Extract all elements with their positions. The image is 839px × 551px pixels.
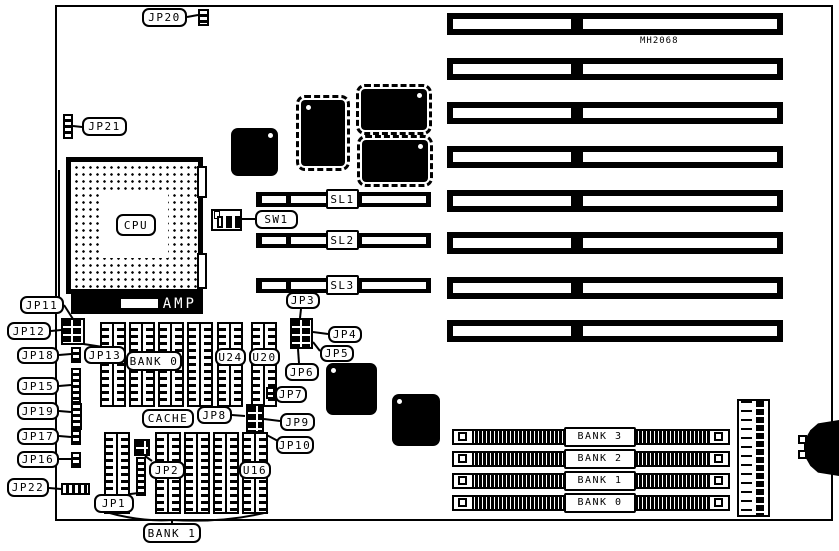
simm-latch xyxy=(714,432,723,441)
jp20-callout: JP20 xyxy=(142,8,187,27)
sl3-label: SL3 xyxy=(326,275,359,295)
isa-slot-4 xyxy=(447,146,783,168)
slot-opening xyxy=(453,19,571,29)
jp1-jumper xyxy=(136,457,146,496)
slot-opening xyxy=(583,283,777,293)
slot-opening xyxy=(453,64,571,74)
jp3-callout: JP3 xyxy=(286,292,320,309)
switch-1 xyxy=(217,216,223,228)
jp13-callout: JP13 xyxy=(84,346,126,364)
u24-label: U24 xyxy=(215,348,246,366)
simm-latch xyxy=(458,498,467,507)
slot-opening xyxy=(291,237,327,244)
chip-qfp-wide-2 xyxy=(362,140,428,182)
socket-tab xyxy=(197,166,207,198)
simm-latch xyxy=(458,476,467,485)
simm-end xyxy=(454,475,472,487)
simm-end xyxy=(454,453,472,465)
isa-slot-6 xyxy=(447,232,783,254)
slot-opening xyxy=(453,108,571,118)
bank0-dip-callout: BANK 0 xyxy=(126,351,182,371)
zif-lever xyxy=(58,170,60,308)
simm-latch xyxy=(458,454,467,463)
dip-socket xyxy=(187,322,213,407)
simm-bank3-label: BANK 3 xyxy=(564,427,636,447)
part-number: MH2068 xyxy=(640,36,679,46)
jp1-callout: JP1 xyxy=(94,494,134,513)
jp22-callout: JP22 xyxy=(7,478,49,497)
slot-opening xyxy=(583,152,777,162)
jp15-callout: JP15 xyxy=(17,377,59,395)
jp17-callout: JP17 xyxy=(17,428,59,445)
din-pin xyxy=(798,450,807,459)
jp8-callout: JP8 xyxy=(197,406,232,424)
jp7-callout: JP7 xyxy=(275,386,307,403)
switch-3 xyxy=(235,216,241,228)
power-connector xyxy=(737,399,770,517)
jp10-callout: JP10 xyxy=(276,436,314,454)
chip-square-3 xyxy=(392,394,440,446)
jp2-callout: JP2 xyxy=(149,461,185,479)
simm-end xyxy=(710,497,728,509)
chip-qfp-tall xyxy=(301,100,345,166)
dip-switch-sw1 xyxy=(211,209,242,231)
simm-end xyxy=(710,475,728,487)
switch-2 xyxy=(226,216,232,228)
jp3-jp4-jp5-jp6-jumper-block xyxy=(290,318,313,349)
simm-socket-bank3: BANK 3 xyxy=(452,429,730,445)
pin1-dot xyxy=(417,93,422,98)
jp8-jp9-jp10-jumper-block xyxy=(246,404,264,433)
slot-opening xyxy=(291,196,327,203)
pin1-dot xyxy=(268,133,273,138)
dip-socket xyxy=(100,322,126,407)
jp15-jumper xyxy=(71,368,81,403)
slot-opening xyxy=(583,19,777,29)
bank1-dip-callout: BANK 1 xyxy=(143,523,201,543)
jp11-callout: JP11 xyxy=(20,296,64,314)
jp2-jumper-block xyxy=(134,439,150,456)
chip-square-2 xyxy=(326,363,377,415)
isa-slot-8 xyxy=(447,320,783,342)
sl2-label: SL2 xyxy=(326,230,359,250)
simm-latch xyxy=(714,498,723,507)
simm-end xyxy=(454,497,472,509)
u20-label: U20 xyxy=(249,348,280,366)
socket-tab xyxy=(197,253,207,289)
jp19-callout: JP19 xyxy=(17,402,59,420)
jp12-callout: JP12 xyxy=(7,322,51,340)
amp-brand-label: AMP xyxy=(163,296,197,312)
slot-opening xyxy=(453,238,571,248)
slot-opening xyxy=(583,196,777,206)
pin1-dot xyxy=(331,368,336,373)
slot-opening xyxy=(362,196,426,203)
jp19-jumper xyxy=(71,403,82,430)
isa-slot-5 xyxy=(447,190,783,212)
dip-socket xyxy=(184,432,210,514)
jp22-jumper xyxy=(61,483,90,495)
jp17-jumper xyxy=(71,430,81,445)
jp5-callout: JP5 xyxy=(320,345,354,362)
slot-opening xyxy=(453,196,571,206)
slot-opening xyxy=(583,108,777,118)
slot-opening xyxy=(262,237,286,244)
slot-opening xyxy=(362,282,426,289)
simm-latch xyxy=(714,476,723,485)
simm-latch xyxy=(714,454,723,463)
simm-socket-bank1: BANK 1 xyxy=(452,473,730,489)
simm-bank0-label: BANK 0 xyxy=(564,493,636,513)
jp7-jumper xyxy=(266,387,275,399)
pin1-dot xyxy=(397,399,402,404)
u16-label: U16 xyxy=(239,461,271,479)
isa-slot-7 xyxy=(447,277,783,299)
cache-callout: CACHE xyxy=(142,409,194,428)
cpu-label: CPU xyxy=(116,214,156,236)
jp18-callout: JP18 xyxy=(17,347,59,364)
jp20-jumper xyxy=(198,9,209,26)
simm-latch xyxy=(458,432,467,441)
simm-bank1-label: BANK 1 xyxy=(564,471,636,491)
jp21-callout: JP21 xyxy=(82,117,127,136)
amp-window xyxy=(121,299,158,308)
slot-opening xyxy=(583,64,777,74)
sw1-callout: SW1 xyxy=(255,210,298,229)
chip-qfp-wide-1 xyxy=(361,89,427,130)
jp16-jumper xyxy=(71,452,81,468)
sl1-label: SL1 xyxy=(326,189,359,209)
jp4-callout: JP4 xyxy=(328,326,362,343)
jp6-callout: JP6 xyxy=(285,363,319,381)
jp11-jp12-jp13-jumper-block xyxy=(61,318,85,345)
simm-end xyxy=(454,431,472,443)
slot-opening xyxy=(291,282,327,289)
simm-end xyxy=(710,453,728,465)
slot-opening xyxy=(453,326,571,336)
slot-opening xyxy=(453,152,571,162)
chip-square-1 xyxy=(231,128,278,176)
slot-opening xyxy=(262,282,286,289)
isa-slot-1 xyxy=(447,13,783,35)
isa-slot-3 xyxy=(447,102,783,124)
slot-opening xyxy=(583,326,777,336)
simm-bank2-label: BANK 2 xyxy=(564,449,636,469)
simm-end xyxy=(710,431,728,443)
motherboard-diagram: MH2068 SL1 SL2 SL3 CPU AMP xyxy=(0,0,839,551)
slot-opening xyxy=(262,196,286,203)
jp16-callout: JP16 xyxy=(17,451,59,468)
isa-slot-2 xyxy=(447,58,783,80)
jp21-jumper xyxy=(63,114,73,139)
simm-socket-bank2: BANK 2 xyxy=(452,451,730,467)
simm-socket-bank0: BANK 0 xyxy=(452,495,730,511)
dip-socket xyxy=(213,432,239,514)
jp9-callout: JP9 xyxy=(280,413,315,431)
pin1-dot xyxy=(418,144,423,149)
pin1-dot xyxy=(306,105,311,110)
amp-connector: AMP xyxy=(71,293,203,314)
jp18-jumper xyxy=(71,347,81,363)
slot-opening xyxy=(362,237,426,244)
din-pin xyxy=(798,435,807,444)
slot-opening xyxy=(453,283,571,293)
slot-opening xyxy=(583,238,777,248)
